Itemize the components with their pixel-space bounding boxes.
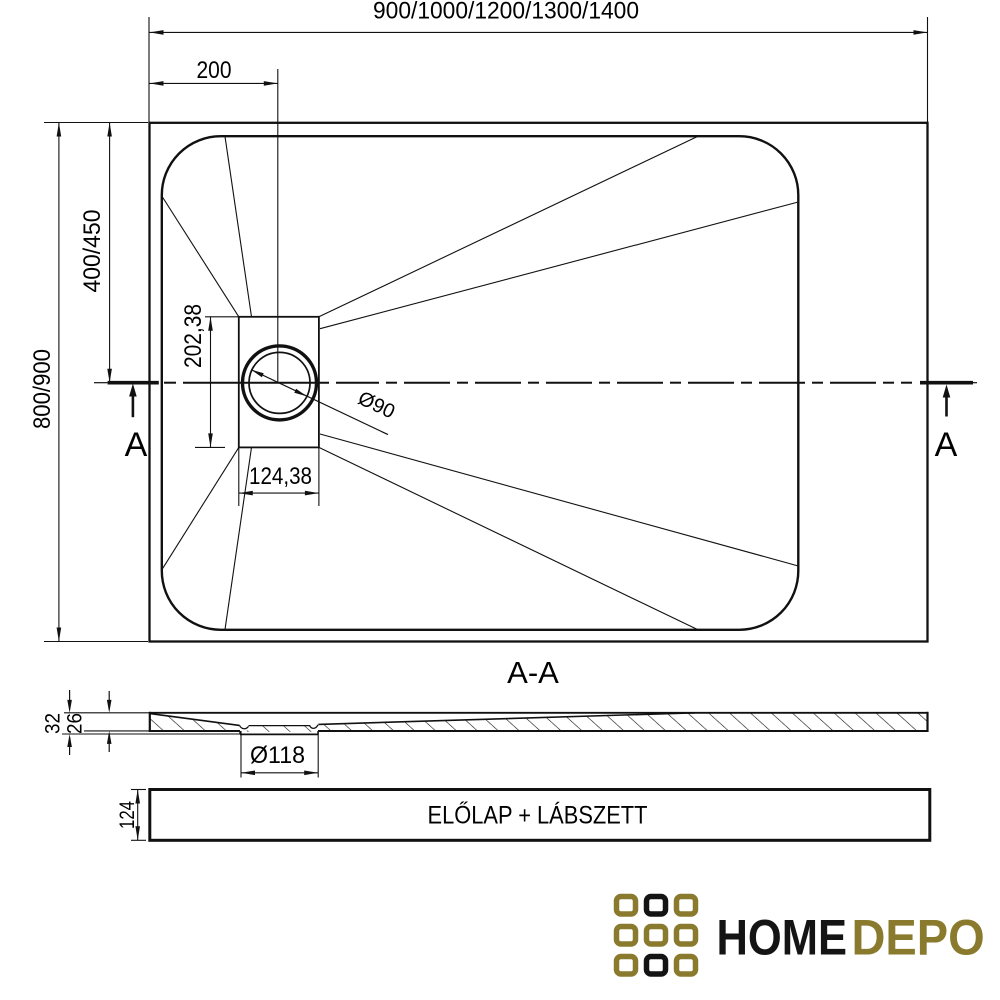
svg-text:400/450: 400/450 <box>79 210 106 293</box>
svg-text:900/1000/1200/1300/1400: 900/1000/1200/1300/1400 <box>373 0 639 25</box>
svg-text:124: 124 <box>116 801 139 829</box>
svg-text:A: A <box>935 426 958 464</box>
svg-text:202,38: 202,38 <box>180 304 207 368</box>
svg-text:ELŐLAP + LÁBSZETT: ELŐLAP + LÁBSZETT <box>428 801 648 830</box>
svg-text:Ø118: Ø118 <box>250 742 305 769</box>
svg-text:HOME: HOME <box>717 910 848 965</box>
svg-text:32: 32 <box>42 713 65 734</box>
svg-text:124,38: 124,38 <box>249 463 312 490</box>
svg-text:26: 26 <box>64 713 87 734</box>
svg-text:DEPO: DEPO <box>852 910 985 966</box>
svg-text:200: 200 <box>197 57 232 84</box>
svg-text:A: A <box>125 426 148 464</box>
svg-text:A-A: A-A <box>507 655 559 690</box>
svg-text:800/900: 800/900 <box>29 349 56 429</box>
